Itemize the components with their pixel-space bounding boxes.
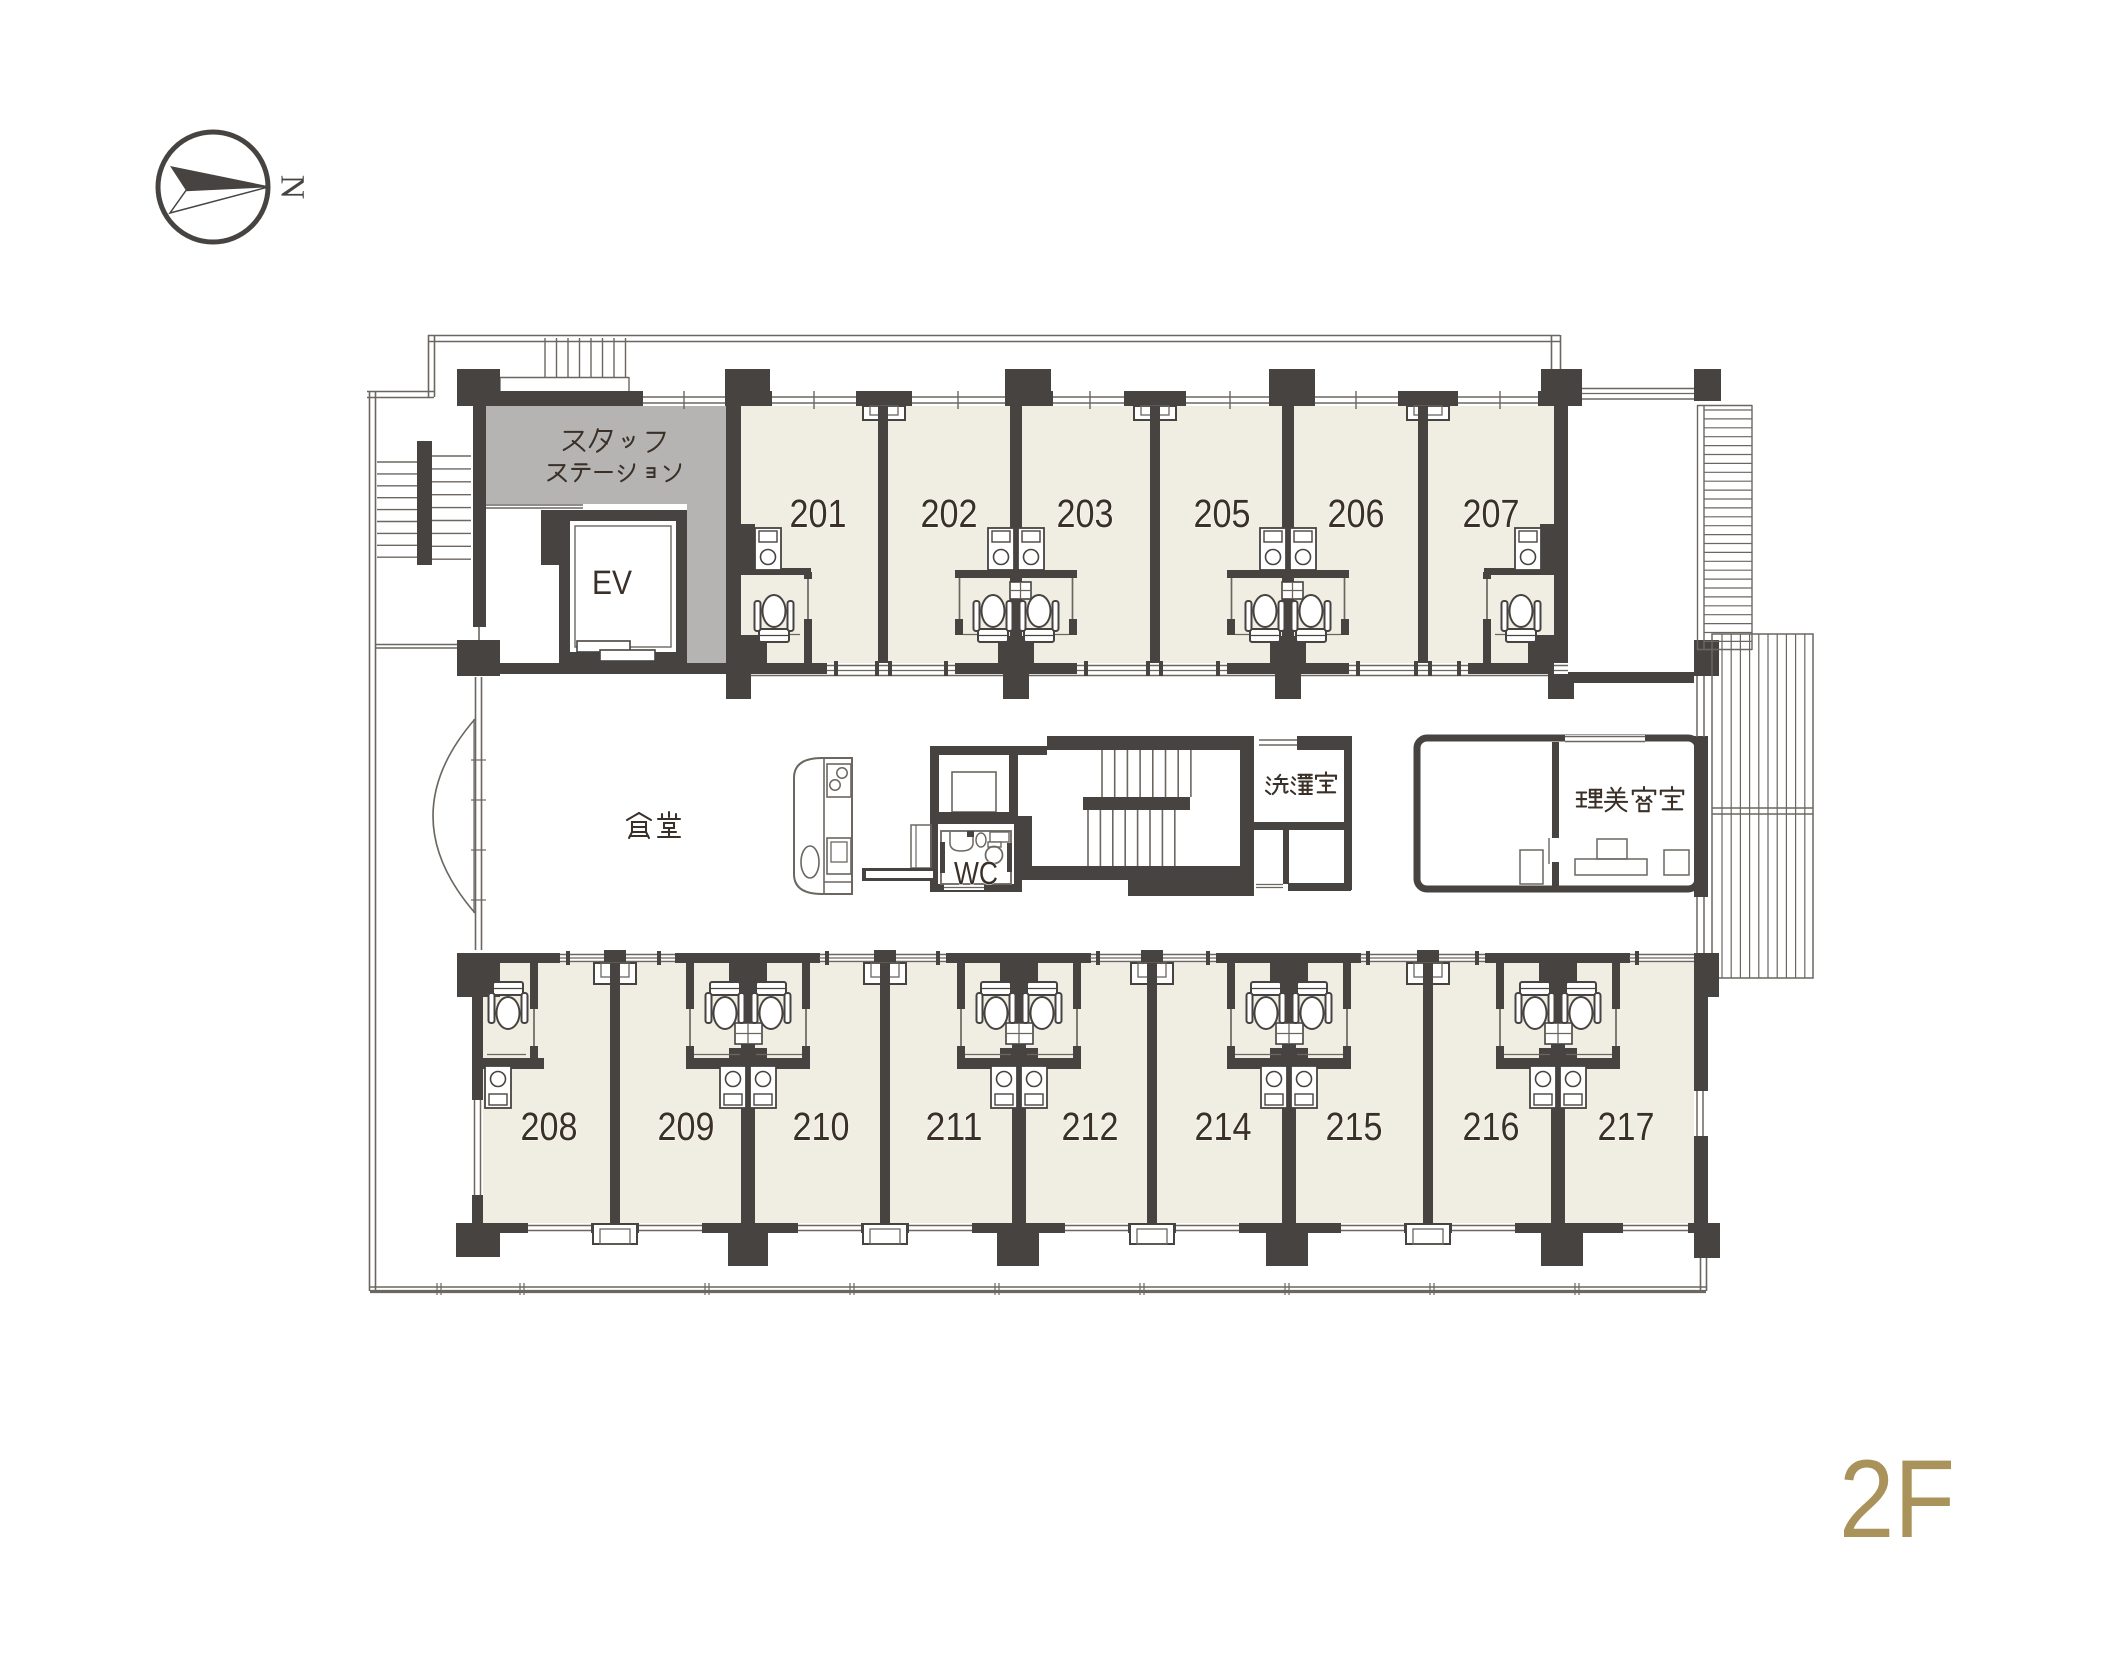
svg-text:N: N — [274, 175, 311, 200]
svg-text:203: 203 — [1057, 492, 1114, 536]
svg-text:217: 217 — [1598, 1105, 1655, 1149]
svg-text:209: 209 — [658, 1105, 715, 1149]
svg-text:215: 215 — [1326, 1105, 1383, 1149]
svg-text:208: 208 — [521, 1105, 578, 1149]
svg-text:212: 212 — [1062, 1105, 1119, 1149]
svg-text:210: 210 — [793, 1105, 850, 1149]
svg-text:EV: EV — [592, 564, 632, 602]
svg-text:211: 211 — [926, 1105, 983, 1149]
svg-text:216: 216 — [1463, 1105, 1520, 1149]
svg-text:205: 205 — [1194, 492, 1251, 536]
svg-text:2F: 2F — [1839, 1437, 1955, 1561]
svg-text:202: 202 — [921, 492, 978, 536]
svg-text:206: 206 — [1328, 492, 1385, 536]
svg-text:214: 214 — [1195, 1105, 1252, 1149]
svg-text:207: 207 — [1463, 492, 1520, 536]
svg-text:201: 201 — [790, 492, 847, 536]
svg-text:WC: WC — [954, 855, 998, 891]
